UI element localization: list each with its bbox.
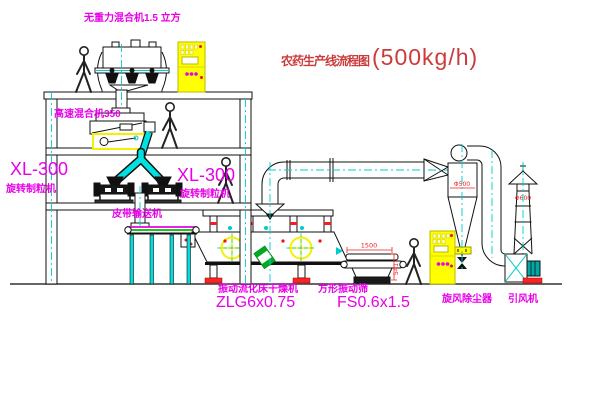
label-sieve-model: FS0.6x1.5	[337, 294, 410, 311]
fan-motor	[527, 261, 540, 276]
label-granulator-right-model: XL-300	[177, 166, 235, 185]
granulator-right	[142, 177, 182, 203]
cad-flow-diagram: Φ500 Φ600	[0, 0, 600, 403]
label-cyclone: 旋风除尘器	[442, 294, 492, 305]
control-cabinet-lower	[430, 231, 455, 284]
label-belt-conveyor: 皮带输送机	[112, 209, 162, 220]
label-gravity-free-mixer: 无重力混合机1.5 立方	[84, 13, 181, 24]
sieve-length-dim: 1500	[361, 242, 378, 250]
label-fan: 引风机	[508, 294, 538, 305]
title-chinese: 农药生产线流程图	[281, 52, 369, 69]
control-cabinet-top	[178, 42, 205, 92]
title-capacity: (500kg/h)	[372, 44, 478, 71]
induced-draft-fan	[505, 254, 542, 283]
label-granulator-right-name: 旋转制粒机	[180, 189, 230, 200]
granulator-left	[94, 177, 134, 203]
person-figure	[406, 239, 421, 284]
label-granulator-left-name: 旋转制粒机	[6, 184, 56, 195]
label-dryer-model: ZLG6x0.75	[216, 294, 295, 311]
drawing-title: 农药生产线流程图 (500kg/h)	[281, 44, 478, 71]
vibrating-sieve: 1500 541	[336, 242, 406, 284]
sieve-height-dim: 541	[392, 263, 400, 275]
belt-conveyor	[125, 227, 199, 284]
building-roof-slab	[44, 92, 252, 99]
person-figure	[76, 47, 91, 92]
person-figure	[162, 103, 177, 148]
fluid-bed-dryer	[181, 210, 348, 283]
gravity-free-mixer	[95, 40, 169, 120]
fan-base	[523, 278, 542, 283]
building-floor2-slab	[46, 148, 251, 155]
label-granulator-left-model: XL-300	[10, 160, 68, 179]
label-high-speed-mixer: 高速混合机350	[54, 109, 121, 120]
